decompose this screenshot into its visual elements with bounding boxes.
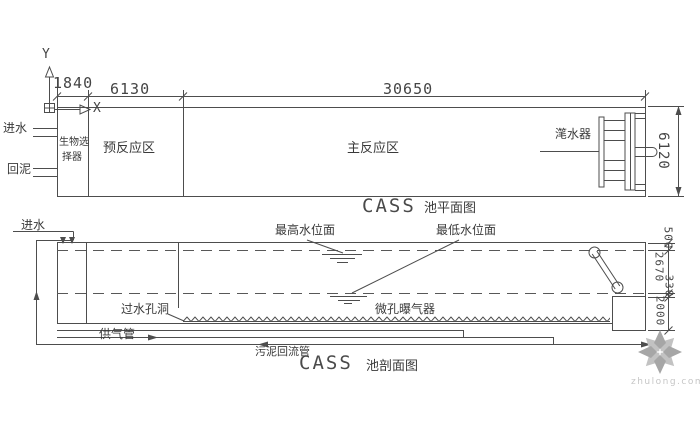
plan-return-sludge-label: 回泥 [7, 163, 31, 175]
max-water-leader [307, 240, 343, 253]
min-water-symbol-icon [330, 297, 367, 304]
plan-dim-30650: 30650 [383, 82, 433, 97]
plan-dim-6120: 6120 [656, 132, 670, 170]
cass-pool-cad-drawing: Y X 1840 6130 30650 6120 进水 回泥 生物选 择器 预反… [0, 0, 700, 434]
min-water-leader [352, 240, 459, 293]
section-min-water-label: 最低水位面 [436, 224, 496, 236]
water-hole-leader [168, 314, 184, 321]
plan-decanter-label: 滗水器 [555, 128, 591, 140]
plan-inlet-return-pipes [33, 129, 57, 177]
plan-title-latin: CASS [362, 197, 416, 216]
x-axis-arrow-icon [55, 105, 90, 114]
plan-decanter-structure [540, 113, 657, 191]
section-dim-2000: 2000 [655, 296, 666, 327]
plan-pre-reaction-label: 预反应区 [103, 142, 155, 155]
section-water-hole-label: 过水孔洞 [121, 303, 169, 315]
axis-origin-marker [45, 104, 55, 113]
section-return-riser [34, 240, 40, 344]
watermark-text: zhulong.com [631, 378, 700, 387]
section-dim-500: 500 [663, 227, 674, 250]
plan-bio-selector-label-line2: 择器 [62, 153, 82, 163]
plan-title-cjk: 池平面图 [424, 202, 476, 215]
plan-main-reaction-label: 主反应区 [347, 142, 399, 155]
y-axis-label: Y [42, 48, 51, 61]
plan-bio-selector-label-line1: 生物选 [59, 138, 89, 148]
section-aerator-diffusers [183, 317, 610, 322]
section-title-latin: CASS [299, 354, 353, 373]
section-decanter-arm [589, 247, 623, 293]
x-axis-label: X [93, 102, 102, 115]
section-inlet-label: 进水 [21, 219, 45, 231]
section-title-cjk: 池剖面图 [366, 360, 418, 373]
plan-inlet-label: 进水 [3, 122, 27, 134]
section-air-pipe-label: 供气管 [99, 328, 135, 340]
section-aerator-label: 微孔曝气器 [375, 303, 435, 315]
zhulong-logo-icon [638, 330, 682, 374]
section-max-water-label: 最高水位面 [275, 224, 335, 236]
plan-dim-6130: 6130 [110, 82, 150, 97]
plan-dim-1840: 1840 [53, 76, 93, 91]
max-water-symbol-icon [322, 255, 362, 263]
section-dim-330: 330 [664, 275, 675, 298]
